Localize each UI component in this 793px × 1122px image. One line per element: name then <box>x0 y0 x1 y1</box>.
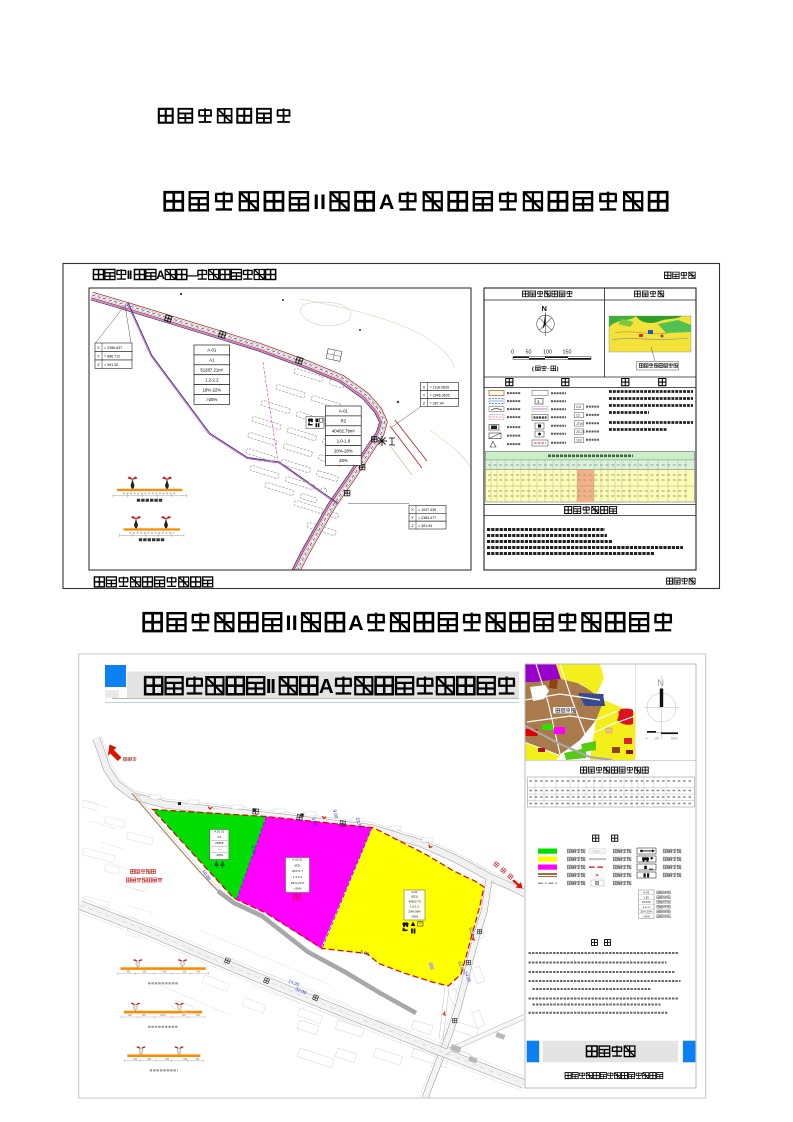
svg-text:>: > <box>596 873 599 879</box>
svg-text:5M: 5M <box>147 1057 152 1061</box>
svg-text:0: 0 <box>646 737 648 741</box>
svg-text:2M: 2M <box>182 1013 187 1017</box>
svg-text:0: 0 <box>511 350 514 356</box>
svg-text:(R2): (R2) <box>294 863 300 867</box>
svg-text:A: A <box>379 190 395 214</box>
svg-text:II: II <box>127 268 133 282</box>
svg-text:= 391.94: = 391.94 <box>418 524 432 528</box>
svg-text:A: A <box>156 268 165 282</box>
svg-text:2M: 2M <box>195 1057 200 1061</box>
svg-text:1.0-1.5: 1.0-1.5 <box>410 905 419 909</box>
svg-text:7.4M: 7.4M <box>161 970 168 974</box>
svg-text:150: 150 <box>563 350 572 356</box>
svg-text:A-01: A-01 <box>411 890 417 894</box>
svg-text:1.2-2.2: 1.2-2.2 <box>205 377 219 382</box>
svg-text:A-01: A-01 <box>207 348 217 353</box>
svg-text:4-6: 4-6 <box>576 405 581 409</box>
svg-text:): ) <box>557 366 559 372</box>
svg-text:25% 20%: 25% 20% <box>640 910 652 914</box>
svg-text:16.52K: 16.52K <box>642 900 651 904</box>
svg-text:25%-27%: 25%-27% <box>291 881 305 885</box>
svg-text:100: 100 <box>576 438 582 442</box>
svg-text:= 2356.637: = 2356.637 <box>104 346 122 350</box>
svg-text:4M: 4M <box>127 970 132 974</box>
svg-text:A1: A1 <box>209 358 215 363</box>
svg-text:40402.79: 40402.79 <box>408 900 420 904</box>
svg-text:5M: 5M <box>143 970 148 974</box>
svg-text:>35%: >35% <box>294 887 302 891</box>
svg-text:= 287.94: = 287.94 <box>430 401 444 405</box>
svg-text:20%-28%: 20%-28% <box>334 448 353 453</box>
svg-text:A: A <box>319 676 334 698</box>
svg-text:>30%: >30% <box>411 914 419 918</box>
svg-text:5M: 5M <box>183 970 188 974</box>
svg-text:A-03: A-03 <box>643 891 649 895</box>
svg-text:>25%: >25% <box>206 397 217 402</box>
svg-text:25-28: 25-28 <box>576 430 585 434</box>
svg-text:R2: R2 <box>341 419 347 424</box>
svg-text:(R21): (R21) <box>411 895 418 899</box>
svg-text:4M: 4M <box>197 970 202 974</box>
svg-text:>30%: >30% <box>643 914 651 918</box>
svg-text:1 2 2 2: 1 2 2 2 <box>293 875 303 879</box>
svg-text:20%-28%: 20%-28% <box>408 909 421 913</box>
svg-text:4M: 4M <box>128 1013 133 1017</box>
svg-text:9M: 9M <box>165 1057 170 1061</box>
svg-text:1.0-1.9: 1.0-1.9 <box>337 438 351 443</box>
svg-text:= 1118.9839: = 1118.9839 <box>430 385 450 389</box>
svg-text:12: 12 <box>576 414 580 418</box>
svg-text:= 2383.477: = 2383.477 <box>418 516 436 520</box>
svg-text:II: II <box>313 190 326 214</box>
svg-text:1.85: 1.85 <box>643 895 649 899</box>
svg-text:2M: 2M <box>142 1013 147 1017</box>
svg-text:(: ( <box>532 366 534 372</box>
svg-text:= 686.712: = 686.712 <box>104 355 120 359</box>
svg-text:12M: 12M <box>160 1013 166 1017</box>
svg-text:—: — <box>218 847 221 851</box>
svg-text:= 391.30: = 391.30 <box>104 363 118 367</box>
svg-text:A 02 02: A 02 02 <box>214 829 225 833</box>
svg-text:50: 50 <box>526 350 532 356</box>
svg-text:II: II <box>286 611 298 635</box>
svg-text:23856: 23856 <box>215 841 224 845</box>
svg-text:N: N <box>658 678 665 688</box>
svg-text:A: A <box>348 611 363 635</box>
svg-text:>85%: >85% <box>215 853 223 857</box>
svg-text:2M: 2M <box>133 1057 138 1061</box>
svg-text:18%-22%: 18%-22% <box>202 387 221 392</box>
svg-text:1.2-.3: 1.2-.3 <box>643 905 651 909</box>
svg-text:N: N <box>542 304 547 313</box>
svg-text:= 1037.439: = 1037.439 <box>418 508 436 512</box>
svg-text:4M: 4M <box>196 1013 201 1017</box>
svg-text:28%: 28% <box>339 458 348 463</box>
svg-text:20: 20 <box>655 737 659 741</box>
svg-text:5M: 5M <box>183 1057 188 1061</box>
svg-text:40402.79m²: 40402.79m² <box>332 429 356 434</box>
svg-text:-2000-: -2000- <box>592 850 601 854</box>
svg-text:= 2946.3625: = 2946.3625 <box>430 393 450 397</box>
svg-text:A 02 01: A 02 01 <box>292 858 303 862</box>
svg-text:·: · <box>547 366 549 372</box>
svg-text:51287.21m²: 51287.21m² <box>200 368 224 373</box>
svg-text:50m: 50m <box>671 737 678 741</box>
svg-text:JTW: JTW <box>576 422 584 426</box>
svg-text:II: II <box>266 676 276 698</box>
svg-text:100: 100 <box>543 350 552 356</box>
svg-text:46171.7: 46171.7 <box>292 869 303 873</box>
svg-text:G1: G1 <box>217 835 221 839</box>
svg-text:A-01: A-01 <box>339 409 349 414</box>
